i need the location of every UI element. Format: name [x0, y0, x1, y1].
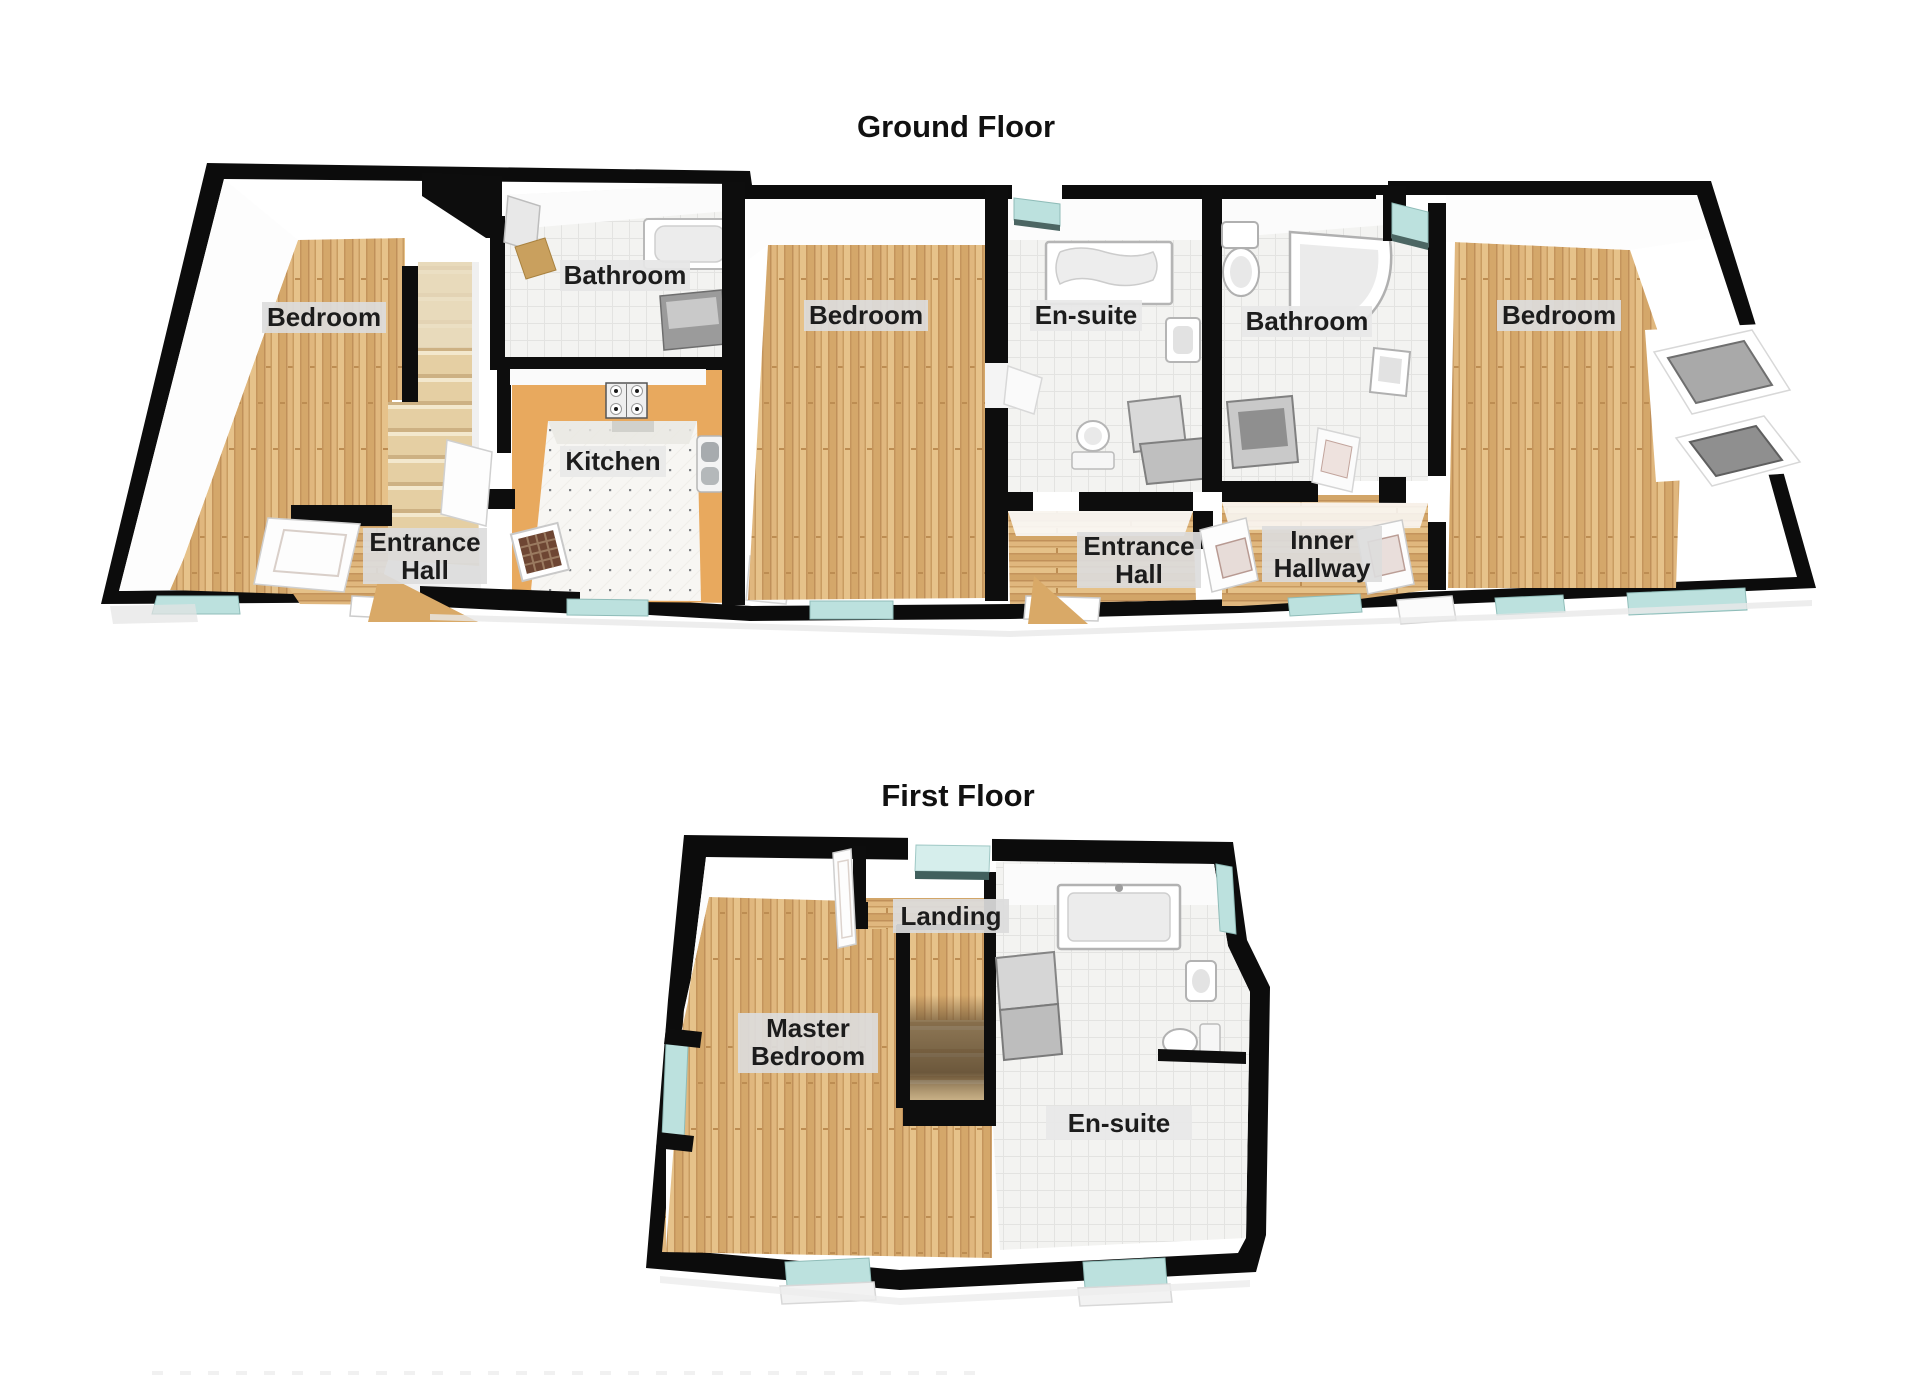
svg-text:Bedroom: Bedroom [809, 300, 923, 330]
svg-text:Entrance: Entrance [1083, 531, 1194, 561]
svg-text:Master: Master [766, 1013, 850, 1043]
svg-text:First Floor: First Floor [881, 778, 1034, 813]
svg-text:En-suite: En-suite [1035, 300, 1138, 330]
svg-text:Ground Floor: Ground Floor [857, 109, 1055, 144]
svg-text:Hallway: Hallway [1274, 553, 1371, 583]
svg-text:Bedroom: Bedroom [751, 1041, 865, 1071]
svg-text:Bathroom: Bathroom [1246, 306, 1369, 336]
svg-text:Inner: Inner [1290, 525, 1354, 555]
svg-text:Hall: Hall [401, 555, 449, 585]
svg-text:En-suite: En-suite [1068, 1108, 1171, 1138]
svg-text:Hall: Hall [1115, 559, 1163, 589]
svg-text:Entrance: Entrance [369, 527, 480, 557]
svg-text:Bedroom: Bedroom [1502, 300, 1616, 330]
svg-text:Bathroom: Bathroom [564, 260, 687, 290]
svg-text:Bedroom: Bedroom [267, 302, 381, 332]
svg-text:Kitchen: Kitchen [565, 446, 660, 476]
svg-text:Landing: Landing [900, 901, 1001, 931]
